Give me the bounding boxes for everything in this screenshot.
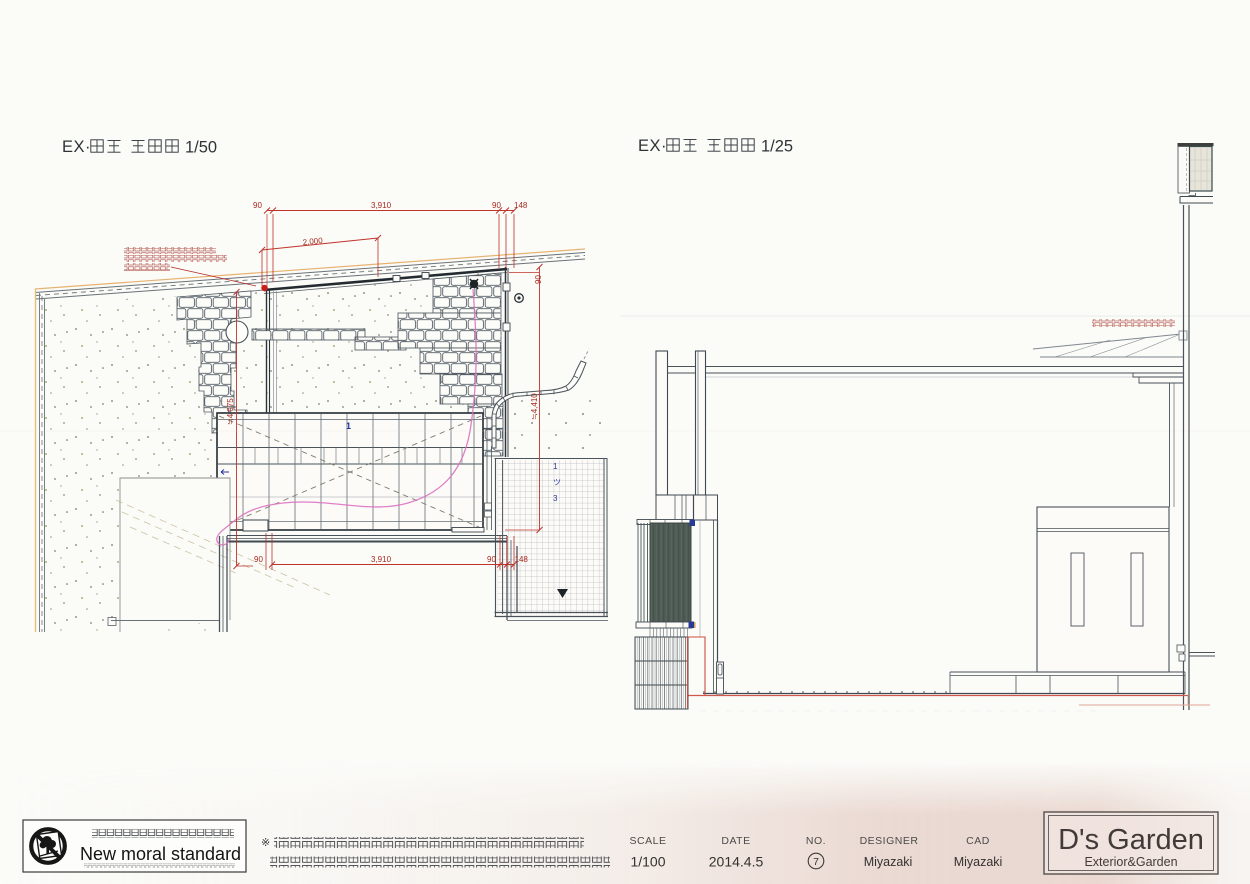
- svg-text:7: 7: [813, 856, 819, 868]
- svg-text:D's Garden: D's Garden: [1058, 824, 1204, 856]
- svg-text:3,910: 3,910: [371, 555, 392, 564]
- svg-text:3,910: 3,910: [371, 201, 392, 210]
- svg-text:90: 90: [254, 555, 263, 564]
- svg-text:DATE: DATE: [721, 835, 750, 847]
- svg-text:※: ※: [261, 837, 270, 849]
- svg-text:≒4,410: ≒4,410: [530, 393, 539, 420]
- svg-text:NO.: NO.: [806, 835, 826, 847]
- svg-text:ツ: ツ: [553, 478, 561, 487]
- svg-text:1: 1: [553, 462, 558, 471]
- svg-text:3: 3: [553, 494, 558, 503]
- svg-text:Miyazaki: Miyazaki: [954, 855, 1003, 869]
- svg-text:EX·: EX·: [638, 137, 667, 155]
- svg-text:1: 1: [346, 421, 351, 431]
- svg-text:Miyazaki: Miyazaki: [864, 855, 913, 869]
- svg-text:148: 148: [514, 201, 528, 210]
- svg-text:CAD: CAD: [966, 835, 990, 847]
- svg-text:DESIGNER: DESIGNER: [860, 835, 919, 847]
- svg-text:1/50: 1/50: [185, 139, 217, 157]
- svg-text:2014.4.5: 2014.4.5: [709, 854, 764, 870]
- svg-text:90: 90: [534, 275, 543, 284]
- svg-text:1/25: 1/25: [761, 138, 793, 156]
- svg-text:≒4,075: ≒4,075: [226, 398, 235, 425]
- svg-text:90: 90: [253, 201, 262, 210]
- svg-text:Exterior&Garden: Exterior&Garden: [1084, 855, 1177, 869]
- svg-text:1/100: 1/100: [630, 854, 665, 870]
- svg-text:90: 90: [487, 555, 496, 564]
- svg-text:90: 90: [492, 201, 501, 210]
- svg-text:148: 148: [515, 555, 529, 564]
- svg-text:2,000: 2,000: [302, 236, 323, 247]
- svg-text:New moral standard: New moral standard: [80, 844, 241, 864]
- svg-text:EX·: EX·: [62, 138, 91, 156]
- svg-text:SCALE: SCALE: [630, 835, 667, 847]
